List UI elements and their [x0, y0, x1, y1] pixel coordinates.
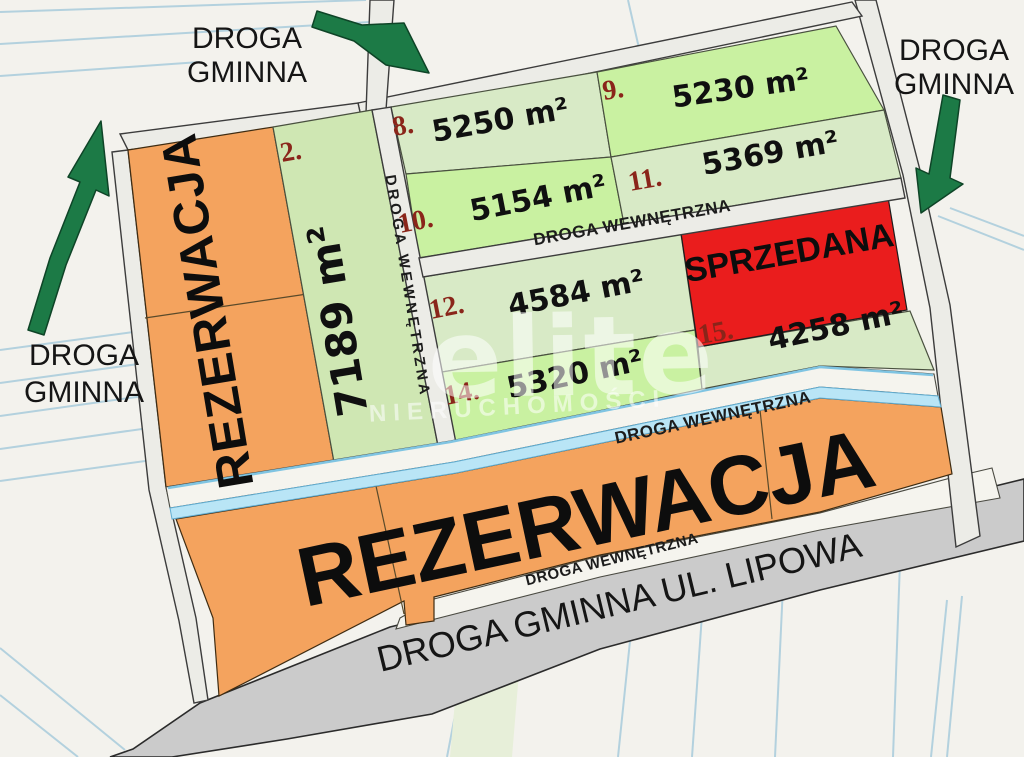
droga-gminna-top-left-line1: DROGA [192, 22, 302, 55]
plot-map: DROGA WEWNĘTRZNA DROGA WEWNĘTRZNA DROGA … [0, 0, 1024, 757]
plot-11-number: 11. [626, 162, 664, 198]
droga-gminna-top-left-line2: GMINNA [187, 56, 307, 89]
plot-map-canvas: DROGA WEWNĘTRZNA DROGA WEWNĘTRZNA DROGA … [0, 0, 1024, 757]
arrow-down-left-icon [916, 95, 963, 213]
droga-gminna-west-line1: DROGA [29, 339, 139, 372]
droga-gminna-top-right-line1: DROGA [899, 34, 1009, 67]
droga-gminna-top-right-line2: GMINNA [894, 68, 1014, 101]
plot-10-number: 10. [395, 203, 435, 240]
arrow-up-icon [28, 121, 109, 335]
droga-gminna-west-line2: GMINNA [24, 376, 144, 409]
